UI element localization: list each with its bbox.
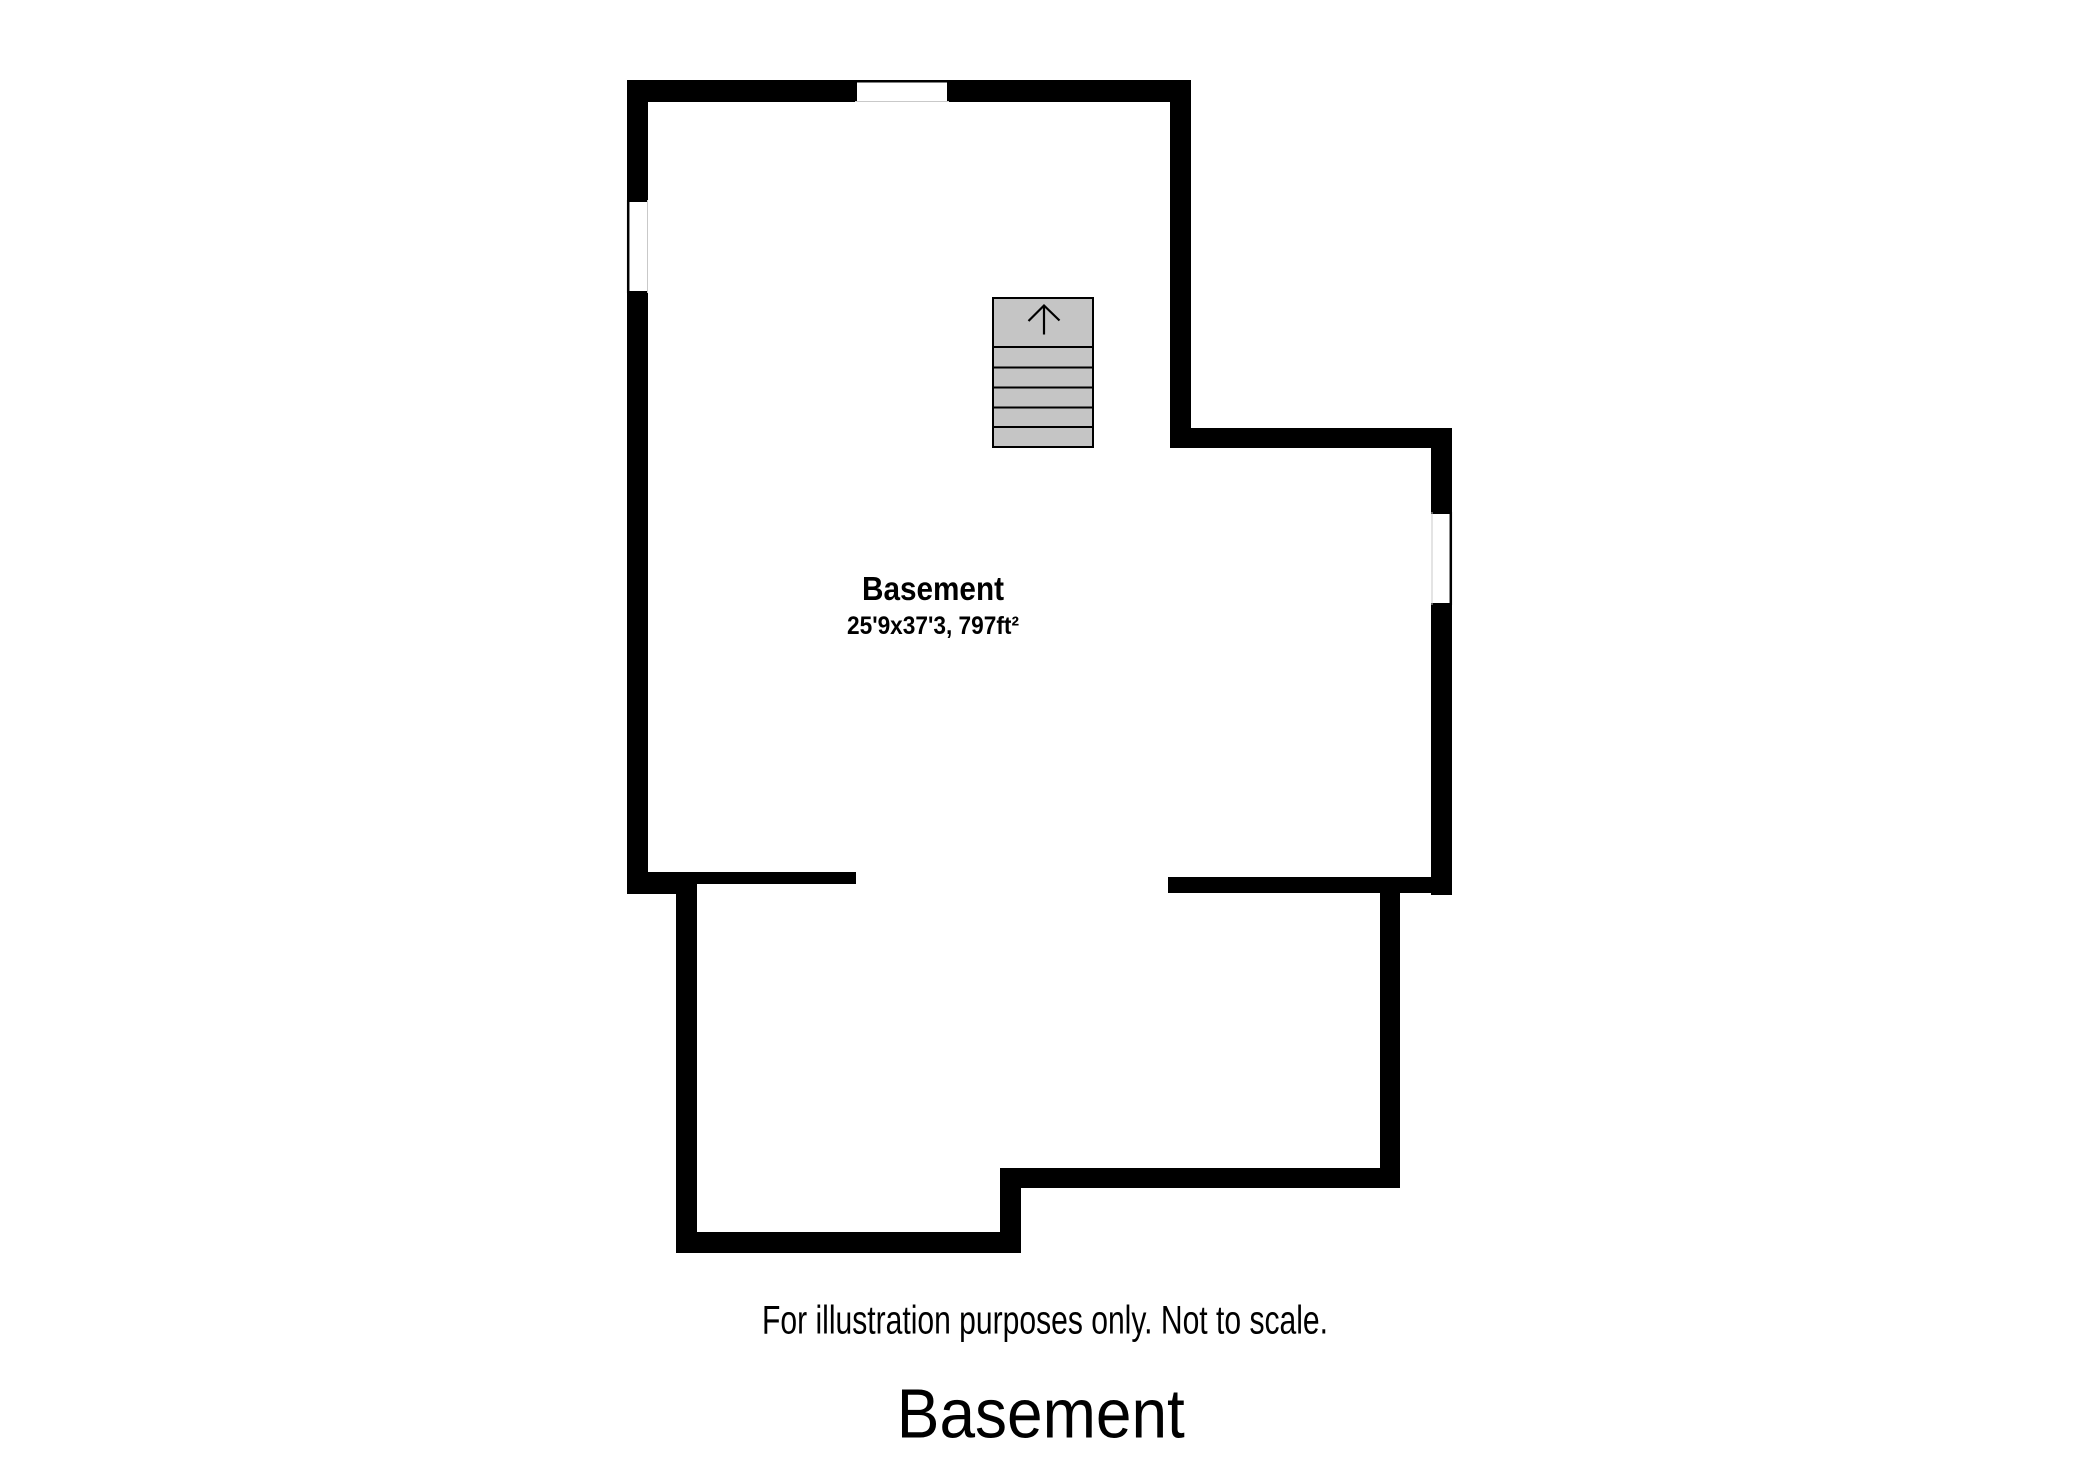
svg-text:For illustration purposes only: For illustration purposes only. Not to s… [762, 1299, 1328, 1343]
svg-text:Basement: Basement [862, 571, 1004, 608]
svg-text:25'9x37'3, 797ft²: 25'9x37'3, 797ft² [847, 612, 1019, 640]
svg-text:Basement: Basement [897, 1375, 1185, 1453]
